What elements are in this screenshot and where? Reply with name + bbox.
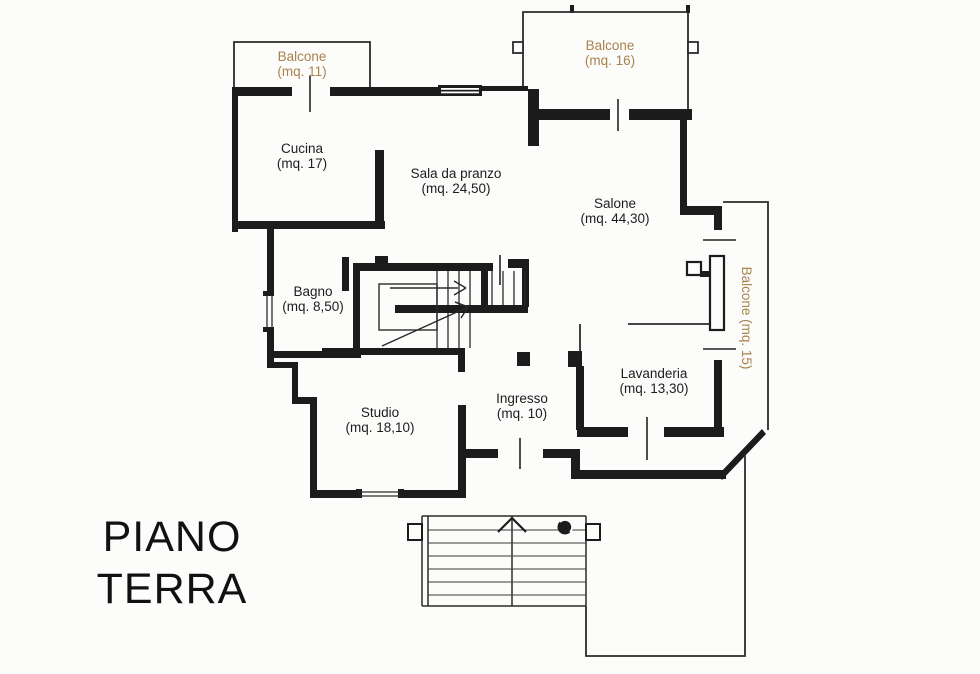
- salone-window: [710, 256, 724, 330]
- ingresso-area: (mq. 10): [497, 406, 547, 421]
- room-label-cucina: Cucina (mq. 17): [277, 141, 327, 171]
- studio-area: (mq. 18,10): [345, 420, 414, 435]
- balcone-15-label: Balcone (mq. 15): [739, 267, 754, 370]
- window-bar-stripe: [441, 88, 479, 90]
- studio-name: Studio: [361, 405, 399, 420]
- floor-plan-page: Balcone (mq. 11) Balcone (mq. 16) Balcon…: [0, 0, 980, 674]
- bagno-name: Bagno: [293, 284, 332, 299]
- lavanderia-name: Lavanderia: [621, 366, 688, 381]
- floor-plan-svg: Balcone (mq. 11) Balcone (mq. 16) Balcon…: [0, 0, 980, 674]
- balcone-11-name: Balcone: [278, 49, 327, 64]
- sala-area: (mq. 24,50): [421, 181, 490, 196]
- room-label-balcone-15: Balcone (mq. 15): [739, 267, 754, 370]
- balcone-11-area: (mq. 11): [277, 64, 326, 79]
- window-bar: [438, 85, 482, 96]
- room-label-lavanderia: Lavanderia (mq. 13,30): [619, 366, 688, 396]
- balcone-16-notch: [688, 42, 698, 53]
- lavanderia-area: (mq. 13,30): [619, 381, 688, 396]
- balcone-16-name: Balcone: [586, 38, 635, 53]
- room-label-balcone-11: Balcone (mq. 11): [277, 49, 326, 79]
- plan-title-line1: PIANO: [103, 513, 242, 561]
- sala-name: Sala da pranzo: [411, 166, 502, 181]
- stair-side-tab: [586, 524, 600, 540]
- ingresso-name: Ingresso: [496, 391, 548, 406]
- cucina-name: Cucina: [281, 141, 324, 156]
- bagno-area: (mq. 8,50): [282, 299, 344, 314]
- salone-name: Salone: [594, 196, 636, 211]
- balcone-16-area: (mq. 16): [585, 53, 635, 68]
- plan-title-line2: TERRA: [97, 565, 248, 613]
- room-label-balcone-16: Balcone (mq. 16): [585, 38, 635, 68]
- room-label-ingresso: Ingresso (mq. 10): [496, 391, 548, 421]
- room-label-sala-da-pranzo: Sala da pranzo (mq. 24,50): [411, 166, 502, 196]
- balcone-16-notch: [513, 42, 523, 53]
- salone-area: (mq. 44,30): [580, 211, 649, 226]
- cucina-area: (mq. 17): [277, 156, 327, 171]
- stair-side-tab: [408, 524, 422, 540]
- window-bar-stripe: [441, 92, 479, 94]
- wall-tab: [687, 262, 701, 275]
